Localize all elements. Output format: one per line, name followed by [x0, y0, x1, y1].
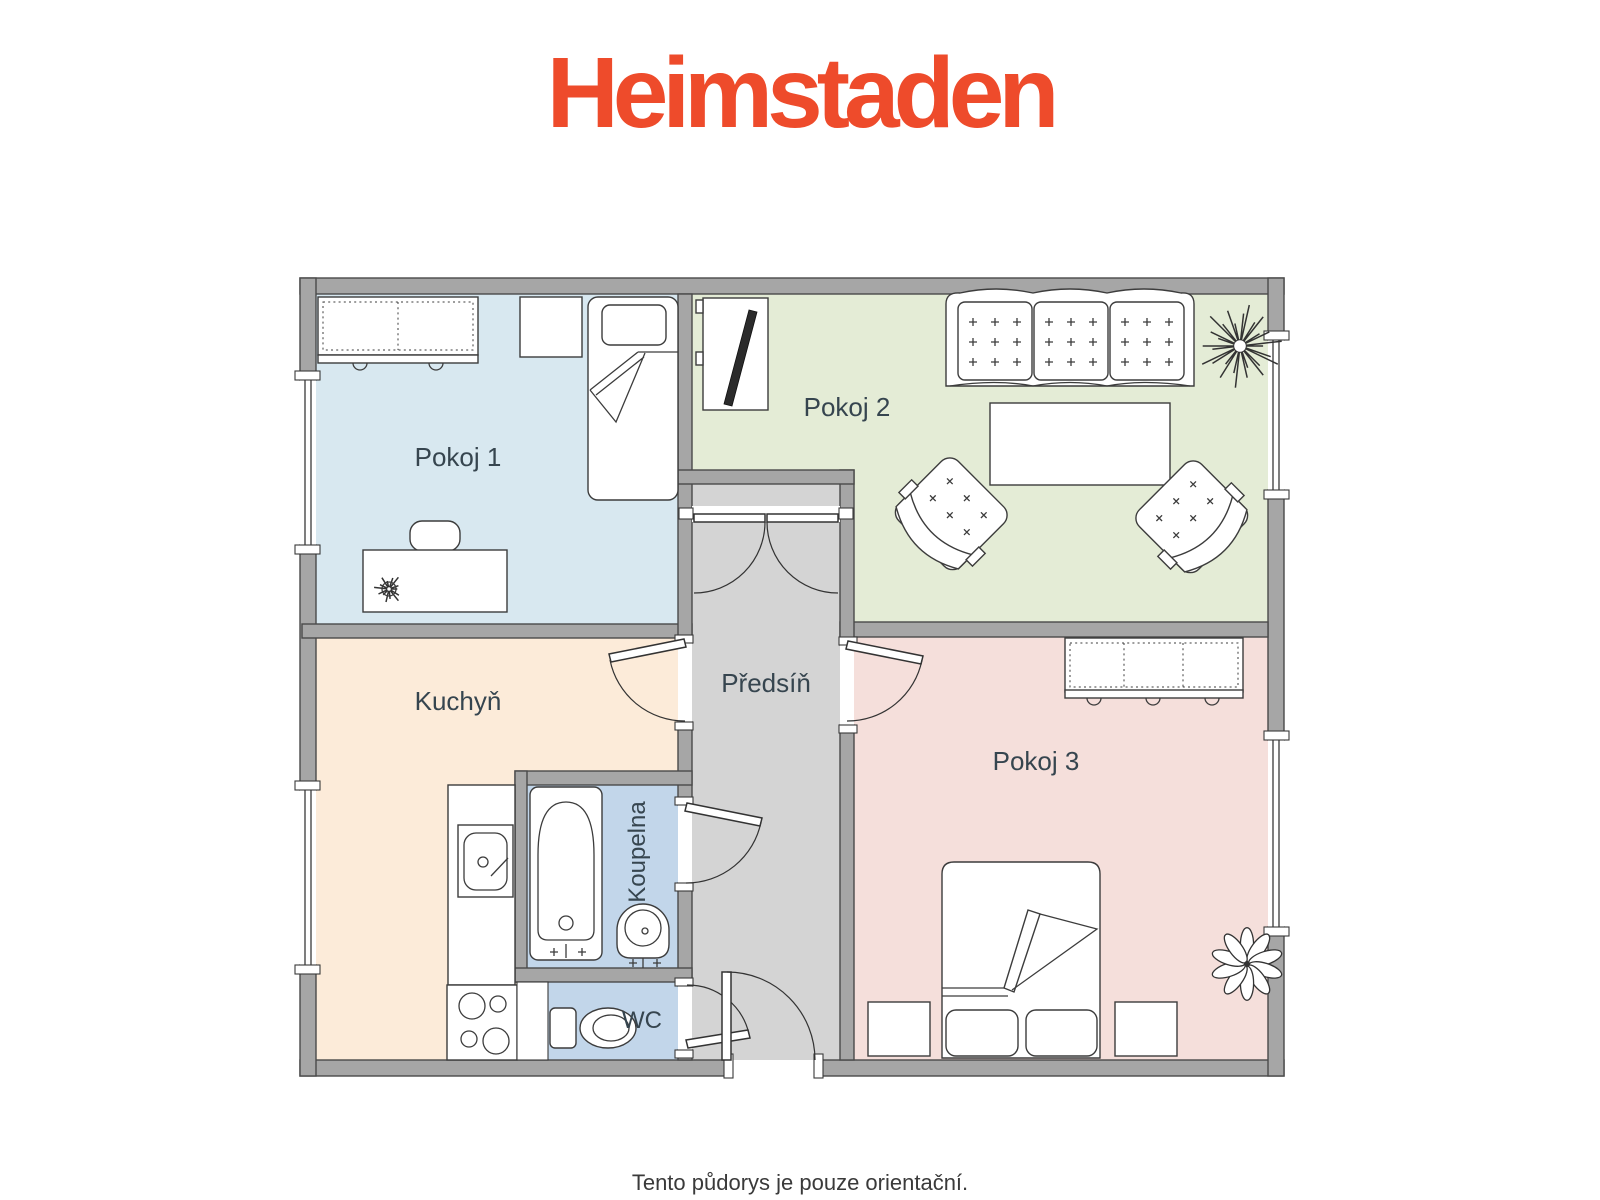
single-bed-icon [588, 297, 678, 500]
dresser-icon [1065, 638, 1243, 705]
disclaimer-caption: Tento půdorys je pouze orientační. [632, 1170, 968, 1195]
mirror-wardrobe-icon [696, 298, 768, 410]
bathtub-icon [530, 787, 602, 960]
page: Heimstaden [0, 0, 1600, 1200]
double-bed-icon [942, 862, 1100, 1058]
room-label-kuchyn: Kuchyň [415, 686, 502, 716]
wardrobe-icon [318, 297, 478, 370]
brand-logo: Heimstaden [547, 37, 1054, 149]
cabinet-icon [520, 297, 582, 357]
nightstand-icon [1115, 1002, 1177, 1056]
room-label-pokoj1: Pokoj 1 [415, 442, 502, 472]
shaft [517, 982, 548, 1060]
room-label-predsin: Předsíň [721, 668, 811, 698]
kitchen-counter-icon [448, 785, 515, 985]
coffee-table-icon [990, 403, 1170, 485]
stove-icon [447, 985, 517, 1060]
room-label-pokoj3: Pokoj 3 [993, 746, 1080, 776]
room-label-pokoj2: Pokoj 2 [804, 392, 891, 422]
room-predsin-floor [692, 484, 840, 1060]
nightstand-icon [868, 1002, 930, 1056]
floorplan-image: Heimstaden [0, 0, 1600, 1200]
room-label-koupelna: Koupelna [624, 801, 651, 903]
room-label-wc: WC [622, 1007, 662, 1034]
sofa-icon [946, 289, 1194, 386]
